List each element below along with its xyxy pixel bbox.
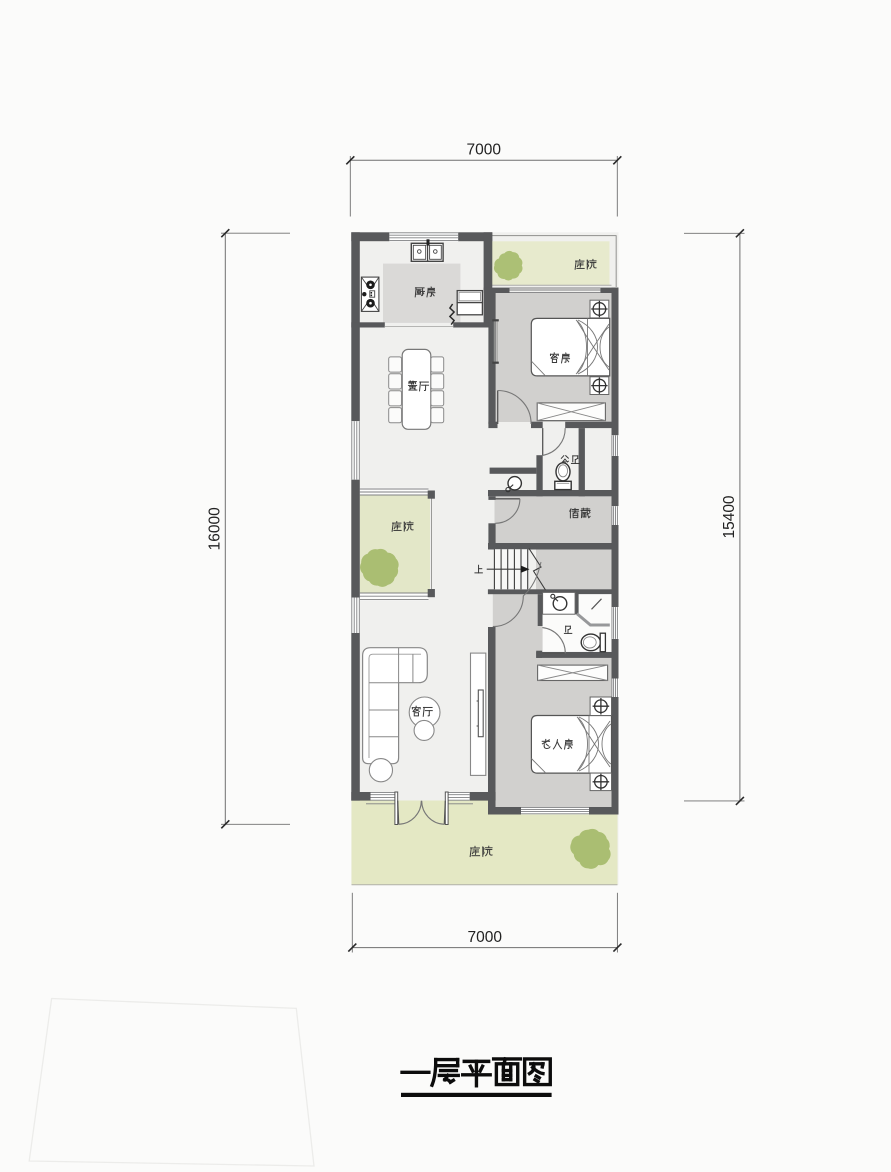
svg-text:7000: 7000 [468, 929, 503, 946]
svg-text:16000: 16000 [207, 507, 224, 550]
svg-text:7000: 7000 [467, 142, 502, 159]
svg-text:15400: 15400 [721, 495, 738, 538]
